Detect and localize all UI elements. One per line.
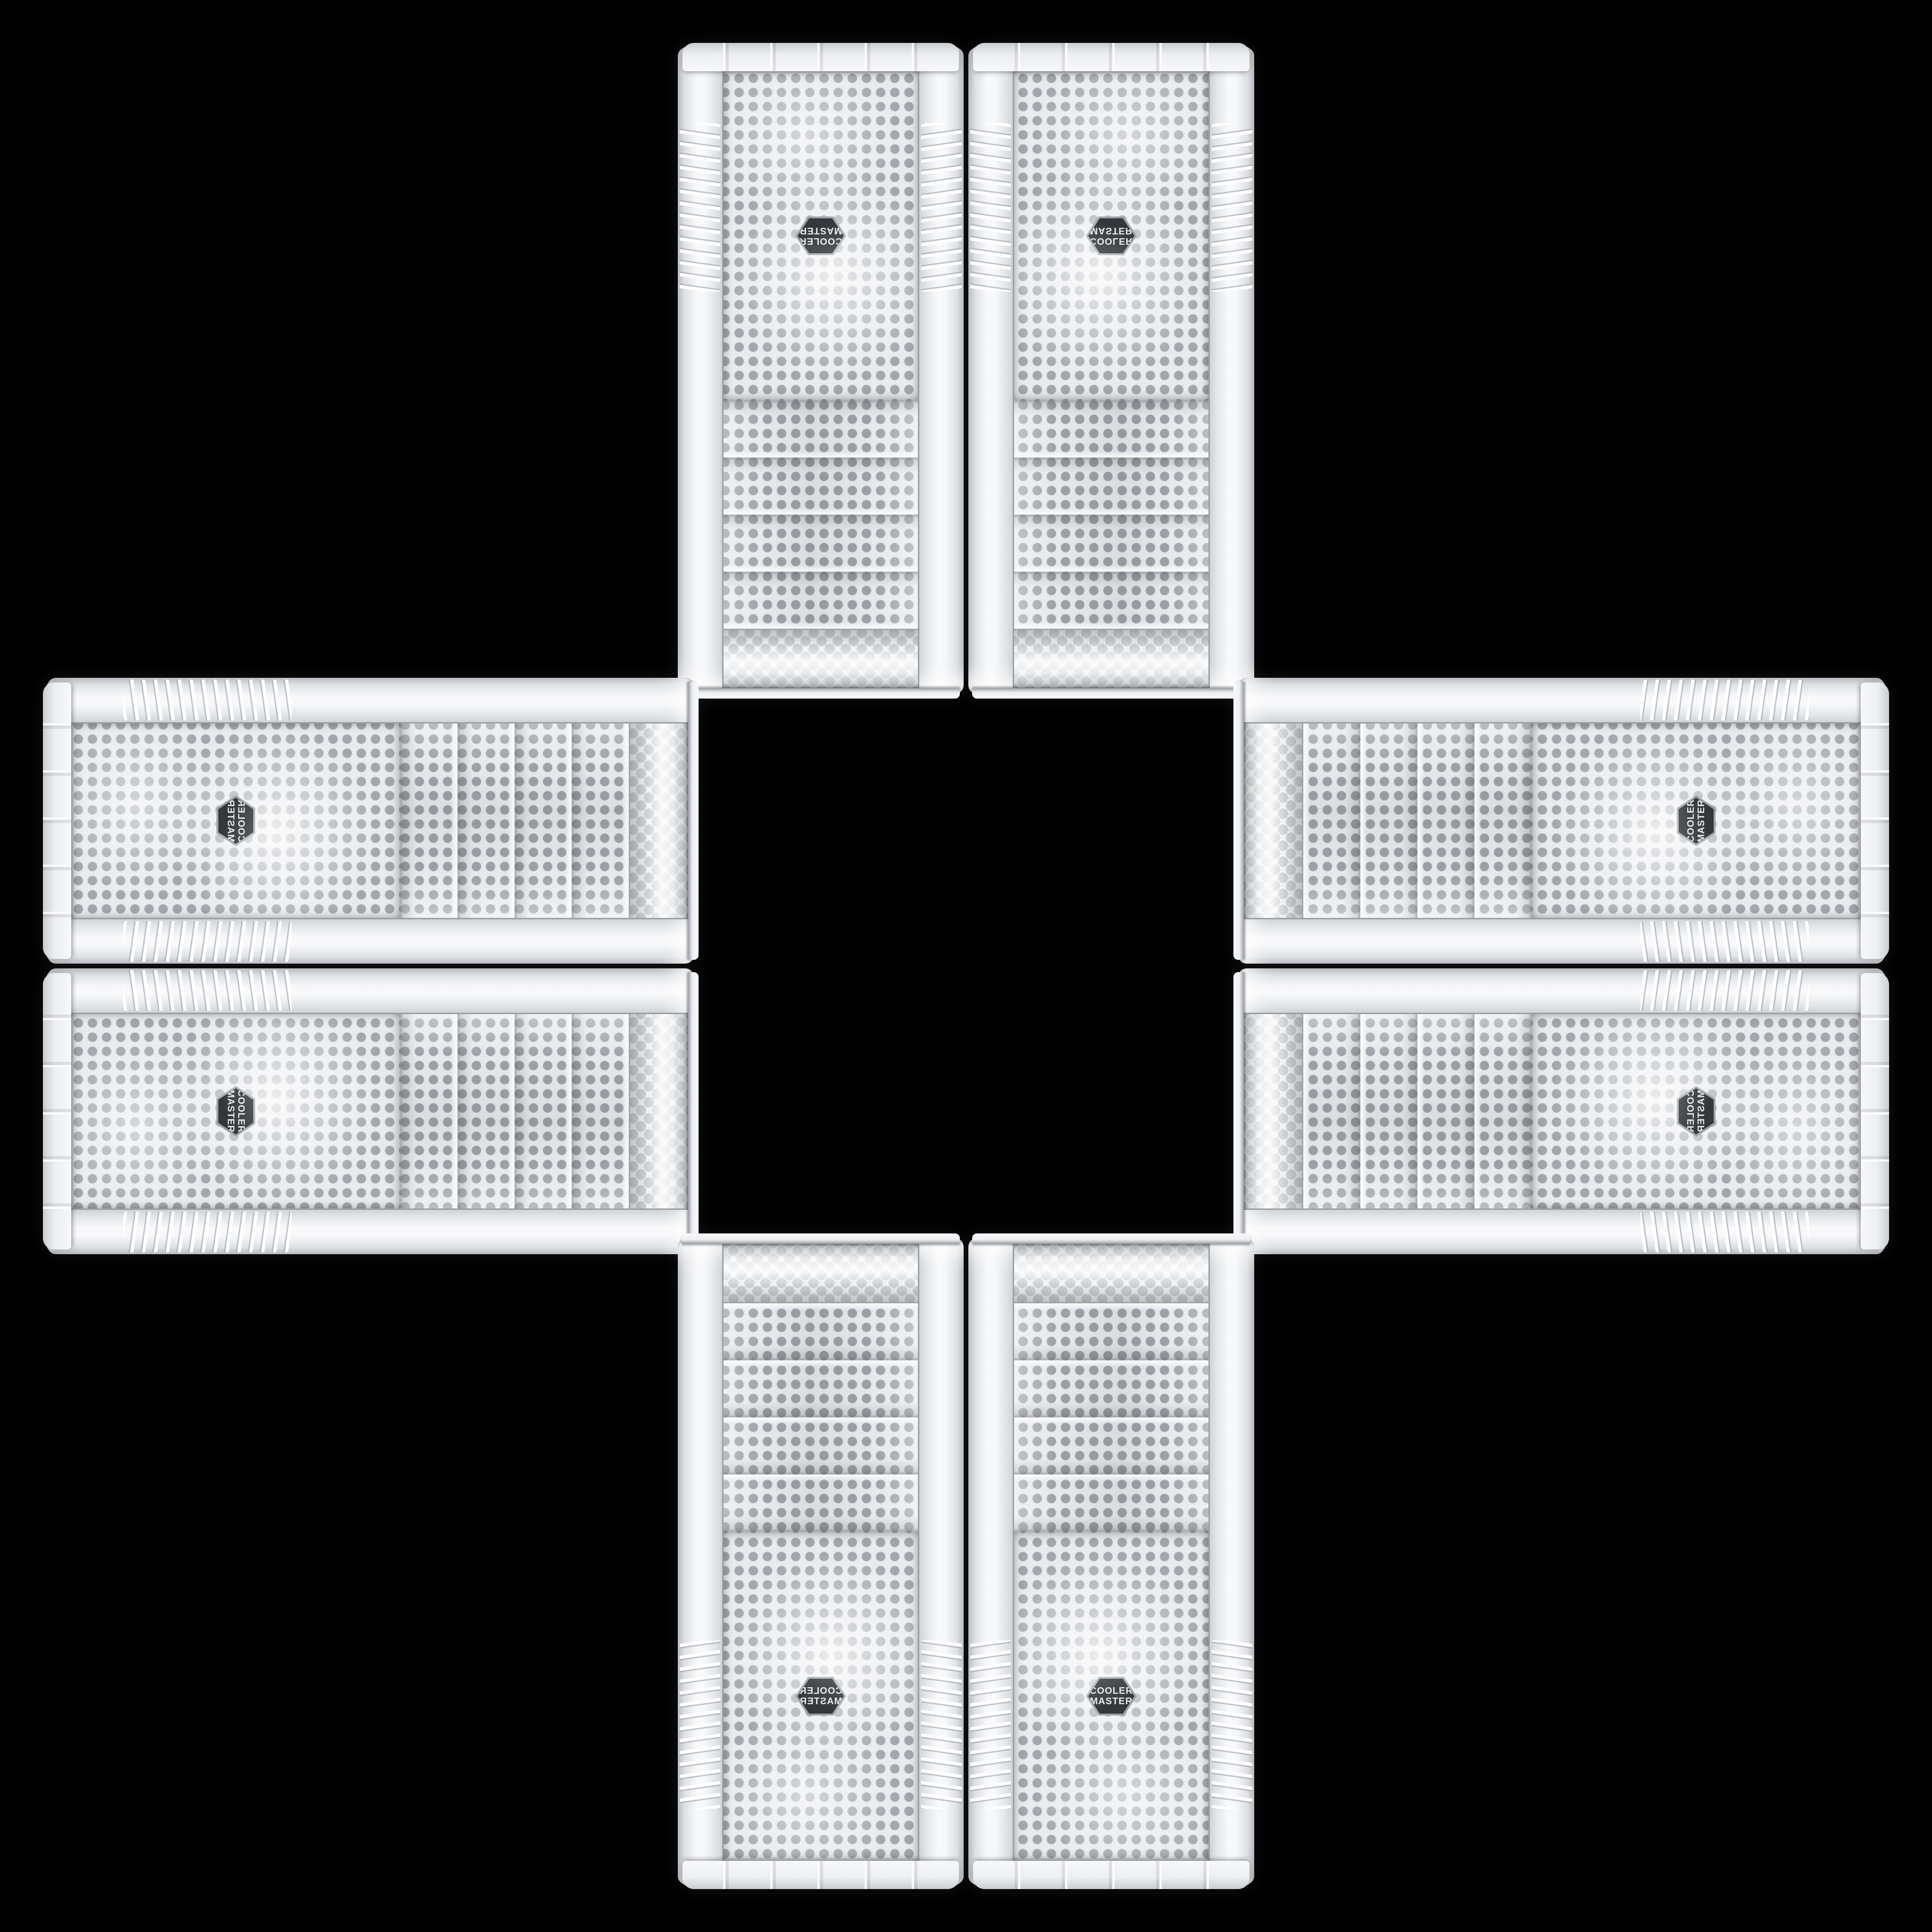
drive-bay-cover — [724, 1474, 918, 1532]
logo-text-line1: COOLER — [1686, 1090, 1696, 1133]
drive-bay-cover — [724, 572, 918, 629]
case-front-panel: COOLER MASTER — [71, 1013, 689, 1210]
logo-text-line2: MASTER — [226, 1090, 235, 1133]
drive-bay-cover — [1014, 1303, 1208, 1360]
drive-bay-cover — [458, 724, 515, 918]
vent-roll-strip — [724, 1243, 918, 1303]
cooler-master-logo: COOLER MASTER — [218, 1088, 253, 1134]
logo-text-line1: COOLER — [236, 799, 246, 842]
case-side-rail-right — [46, 678, 692, 722]
logo-text-line2: MASTER — [226, 799, 235, 842]
vent-roll-strip — [1243, 724, 1303, 918]
rail-rib-texture — [680, 123, 720, 291]
drive-bay-cover — [1360, 724, 1417, 918]
cooler-master-badge: COOLER MASTER — [1086, 1677, 1137, 1715]
case-side-rail-left — [46, 968, 692, 1013]
drive-bay-cover — [1014, 400, 1208, 458]
case-side-rail-right — [1210, 1240, 1254, 1886]
drive-bay-cover — [1303, 724, 1360, 918]
cooler-master-logo: COOLER MASTER — [1088, 218, 1134, 253]
case-side-rail-left — [919, 1240, 964, 1886]
case-side-rail-right — [46, 1210, 692, 1254]
mesh-grille: COOLER MASTER — [1014, 71, 1208, 400]
vent-roll-strip — [629, 724, 689, 918]
case-top-lip — [688, 682, 699, 960]
rail-rib-texture — [970, 1641, 1011, 1808]
cooler-master-badge: COOLER MASTER — [217, 795, 255, 846]
pc-case-top-right: COOLER MASTER — [968, 43, 1254, 699]
drive-bay-cover — [724, 458, 918, 515]
case-top-lip — [1233, 682, 1244, 960]
logo-text-line2: MASTER — [799, 1697, 842, 1706]
case-bottom-cap — [973, 1861, 1249, 1889]
vent-roll-strip — [629, 1014, 689, 1208]
case-side-rail-left — [1240, 968, 1886, 1013]
mesh-grille: COOLER MASTER — [71, 724, 400, 918]
drive-bay-cover — [724, 515, 918, 572]
logo-text-line1: COOLER — [1090, 1686, 1133, 1696]
rail-rib-texture — [1641, 1212, 1808, 1252]
cooler-master-badge: COOLER MASTER — [1677, 795, 1715, 846]
drive-bay-cover — [1014, 1417, 1208, 1474]
case-side-rail-right — [1240, 1210, 1886, 1254]
case-front-panel: COOLER MASTER — [722, 1243, 919, 1861]
logo-text-line2: MASTER — [1697, 799, 1706, 842]
rail-rib-texture — [921, 123, 962, 291]
case-front-panel: COOLER MASTER — [1013, 1243, 1210, 1861]
mesh-grille: COOLER MASTER — [71, 1014, 400, 1208]
cooler-master-logo: COOLER MASTER — [218, 798, 253, 844]
cooler-master-logo: COOLER MASTER — [1679, 798, 1714, 844]
drive-bay-cover — [572, 724, 629, 918]
case-front-panel: COOLER MASTER — [1243, 1013, 1861, 1210]
drive-bay-cover — [1014, 1474, 1208, 1532]
case-front-panel: COOLER MASTER — [71, 722, 689, 919]
mesh-grille: COOLER MASTER — [1014, 1532, 1208, 1861]
mesh-grille: COOLER MASTER — [724, 71, 918, 400]
cooler-master-badge: COOLER MASTER — [795, 217, 846, 255]
case-bottom-cap — [1861, 683, 1889, 959]
rail-rib-texture — [1641, 921, 1808, 962]
drive-bay-cover — [515, 1014, 572, 1208]
black-canvas: { "scene": { "description": "Eight ident… — [0, 0, 1932, 1932]
case-front-panel: COOLER MASTER — [1243, 722, 1861, 919]
drive-bay-cover — [1014, 1360, 1208, 1417]
cooler-master-logo: COOLER MASTER — [798, 1679, 844, 1714]
drive-bay-cover — [1303, 1014, 1360, 1208]
cooler-master-badge: COOLER MASTER — [1086, 217, 1137, 255]
mesh-grille: COOLER MASTER — [1532, 724, 1861, 918]
case-bottom-cap — [973, 43, 1249, 71]
drive-bay-cover — [1474, 1014, 1532, 1208]
pc-case-right-top: COOLER MASTER — [1233, 678, 1889, 964]
pc-case-bottom-left: COOLER MASTER — [678, 1233, 964, 1889]
drive-bay-cover — [572, 1014, 629, 1208]
case-bottom-cap — [43, 973, 71, 1249]
drive-bay-cover — [1417, 1014, 1474, 1208]
rail-rib-texture — [970, 123, 1011, 291]
case-side-rail-right — [678, 1240, 722, 1886]
drive-bay-cover — [724, 400, 918, 458]
rail-rib-texture — [1641, 680, 1808, 720]
drive-bay-cover — [400, 1014, 458, 1208]
case-side-rail-left — [968, 1240, 1013, 1886]
vent-roll-strip — [1243, 1014, 1303, 1208]
case-bottom-cap — [1861, 973, 1889, 1249]
cooler-master-badge: COOLER MASTER — [217, 1086, 255, 1137]
case-top-lip — [972, 688, 1250, 699]
cooler-master-badge: COOLER MASTER — [1677, 1086, 1715, 1137]
rail-rib-texture — [1212, 123, 1252, 291]
case-side-rail-right — [1240, 678, 1886, 722]
rail-rib-texture — [123, 1212, 291, 1252]
logo-text-line2: MASTER — [1090, 1697, 1133, 1706]
rail-rib-texture — [921, 1641, 962, 1808]
drive-bay-cover — [458, 1014, 515, 1208]
drive-bay-cover — [1360, 1014, 1417, 1208]
case-bottom-cap — [43, 683, 71, 959]
rail-rib-texture — [1641, 970, 1808, 1011]
logo-text-line1: COOLER — [1090, 236, 1133, 246]
pc-case-right-bottom: COOLER MASTER — [1233, 968, 1889, 1254]
drive-bay-cover — [400, 724, 458, 918]
mesh-grille: COOLER MASTER — [1532, 1014, 1861, 1208]
case-side-rail-right — [1210, 46, 1254, 692]
logo-text-line1: COOLER — [799, 1686, 842, 1696]
rail-rib-texture — [123, 680, 291, 720]
case-side-rail-right — [678, 46, 722, 692]
cooler-master-logo: COOLER MASTER — [1088, 1679, 1134, 1714]
case-side-rail-left — [919, 46, 964, 692]
pc-case-left-bottom: COOLER MASTER — [43, 968, 699, 1254]
vent-roll-strip — [724, 629, 918, 689]
drive-bay-cover — [724, 1417, 918, 1474]
case-bottom-cap — [683, 1861, 959, 1889]
vent-roll-strip — [1014, 1243, 1208, 1303]
drive-bay-cover — [724, 1360, 918, 1417]
case-front-panel: COOLER MASTER — [722, 71, 919, 689]
pc-case-left-top: COOLER MASTER — [43, 678, 699, 964]
logo-text-line2: MASTER — [799, 226, 842, 235]
drive-bay-cover — [724, 1303, 918, 1360]
cooler-master-badge: COOLER MASTER — [795, 1677, 846, 1715]
rail-rib-texture — [680, 1641, 720, 1808]
logo-text-line2: MASTER — [1697, 1090, 1706, 1133]
case-side-rail-left — [46, 919, 692, 964]
vent-roll-strip — [1014, 629, 1208, 689]
cooler-master-logo: COOLER MASTER — [798, 218, 844, 253]
case-side-rail-left — [1240, 919, 1886, 964]
case-side-rail-left — [968, 46, 1013, 692]
drive-bay-cover — [515, 724, 572, 918]
case-front-panel: COOLER MASTER — [1013, 71, 1210, 689]
case-top-lip — [972, 1233, 1250, 1244]
logo-text-line1: COOLER — [1686, 799, 1696, 842]
cooler-master-logo: COOLER MASTER — [1679, 1088, 1714, 1134]
pc-case-bottom-right: COOLER MASTER — [968, 1233, 1254, 1889]
logo-text-line2: MASTER — [1090, 226, 1133, 235]
rail-rib-texture — [123, 970, 291, 1011]
logo-text-line1: COOLER — [236, 1090, 246, 1133]
drive-bay-cover — [1014, 515, 1208, 572]
case-top-lip — [682, 1233, 960, 1244]
mesh-grille: COOLER MASTER — [724, 1532, 918, 1861]
drive-bay-cover — [1474, 724, 1532, 918]
rail-rib-texture — [1212, 1641, 1252, 1808]
case-top-lip — [682, 688, 960, 699]
drive-bay-cover — [1417, 724, 1474, 918]
drive-bay-cover — [1014, 458, 1208, 515]
case-top-lip — [1233, 972, 1244, 1250]
drive-bay-cover — [1014, 572, 1208, 629]
pc-case-top-left: COOLER MASTER — [678, 43, 964, 699]
rail-rib-texture — [123, 921, 291, 962]
logo-text-line1: COOLER — [799, 236, 842, 246]
case-top-lip — [688, 972, 699, 1250]
case-bottom-cap — [683, 43, 959, 71]
